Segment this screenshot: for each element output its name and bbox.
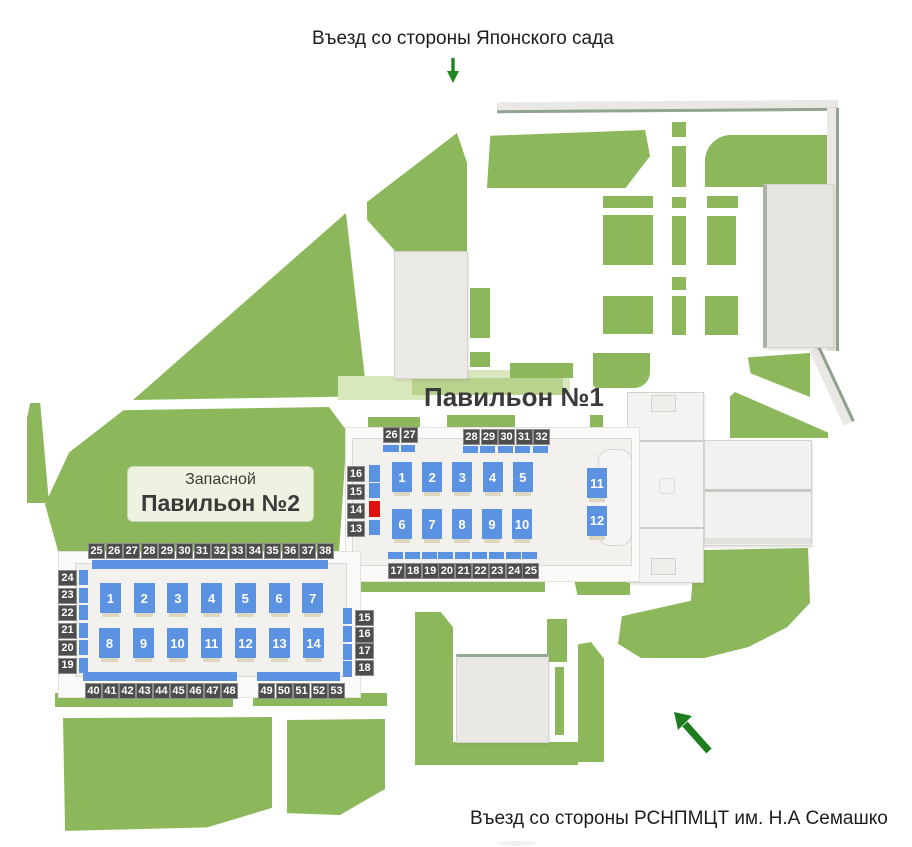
building: [704, 440, 812, 546]
booth-marker-1[interactable]: 1: [392, 462, 412, 492]
booth-marker-4[interactable]: 4: [201, 583, 222, 613]
parking-spot-badge-31[interactable]: 31: [516, 429, 533, 445]
lawn-area: [470, 352, 490, 367]
parking-spot-badge-41[interactable]: 41: [102, 683, 119, 699]
stall-strip: [79, 623, 88, 638]
lawn-area: [672, 197, 686, 208]
lawn-area: [730, 392, 828, 438]
parking-spot-badge-53[interactable]: 53: [328, 683, 345, 699]
stall-strip: [83, 672, 237, 681]
stall-strip: [401, 445, 415, 452]
lawn-area: [415, 742, 578, 765]
lawn-area: [367, 133, 467, 252]
parking-spot-badge-27[interactable]: 27: [123, 543, 140, 559]
parking-spot-badge-16[interactable]: 16: [347, 466, 365, 482]
stall-strip: [489, 552, 504, 559]
parking-spot-badge-40[interactable]: 40: [85, 683, 102, 699]
booth-marker-3[interactable]: 3: [167, 583, 188, 613]
parking-spot-badge-42[interactable]: 42: [119, 683, 136, 699]
booth-marker-12[interactable]: 12: [235, 628, 256, 658]
building: [456, 654, 549, 743]
lawn-area: [672, 216, 686, 265]
parking-spot-badge-29[interactable]: 29: [481, 429, 498, 445]
booth-marker-5[interactable]: 5: [235, 583, 256, 613]
parking-spot-badge-38[interactable]: 38: [317, 543, 334, 559]
stall-strip: [533, 446, 548, 453]
parking-spot-badge-24[interactable]: 24: [506, 563, 523, 579]
lawn-area: [748, 353, 810, 397]
stall-strip: [79, 640, 88, 655]
parking-spot-badge-26[interactable]: 26: [383, 427, 400, 443]
pavilion1-title: Павильон №1: [424, 382, 604, 413]
booth-marker-10[interactable]: 10: [167, 628, 188, 658]
parking-spot-badge-47[interactable]: 47: [204, 683, 221, 699]
parking-spot-badge-43[interactable]: 43: [136, 683, 153, 699]
parking-spot-badge-25[interactable]: 25: [88, 543, 105, 559]
booth-marker-7[interactable]: 7: [422, 509, 442, 539]
parking-spot-badge-52[interactable]: 52: [311, 683, 328, 699]
lawn-area: [555, 667, 564, 735]
booth-marker-14[interactable]: 14: [303, 628, 324, 658]
stall-strip: [343, 626, 352, 642]
parking-spot-badge-34[interactable]: 34: [246, 543, 263, 559]
building-detail: [659, 478, 675, 494]
booth-marker-7[interactable]: 7: [302, 583, 323, 613]
parking-spot-badge-32[interactable]: 32: [211, 543, 228, 559]
pavilion2-title: Павильон №2: [128, 490, 313, 517]
lawn-area: [63, 717, 272, 832]
building: [651, 395, 676, 412]
parking-spot-badge-23[interactable]: 23: [489, 563, 506, 579]
parking-spot-badge-44[interactable]: 44: [153, 683, 170, 699]
lawn-area: [547, 619, 567, 662]
parking-spot-badge-21[interactable]: 21: [58, 623, 77, 639]
parking-spot-badge-30[interactable]: 30: [176, 543, 193, 559]
stall-strip: [472, 552, 487, 559]
stall-strip: [522, 552, 537, 559]
parking-spot-badge-28[interactable]: 28: [463, 429, 480, 445]
parking-spot-badge-48[interactable]: 48: [221, 683, 238, 699]
booth-marker-9[interactable]: 9: [133, 628, 154, 658]
lawn-area: [487, 130, 650, 188]
stall-strip: [79, 605, 88, 620]
parking-spot-badge-32[interactable]: 32: [533, 429, 550, 445]
parking-spot-badge-16[interactable]: 16: [355, 627, 374, 643]
parking-spot-badge-27[interactable]: 27: [401, 427, 418, 443]
parking-spot-badge-17[interactable]: 17: [355, 643, 374, 659]
entrance-bottom-label: Въезд со стороны РСНПМЦТ им. Н.А Семашко: [470, 808, 888, 830]
lawn-area: [510, 363, 573, 378]
stall-strip: [515, 446, 530, 453]
parking-spot-badge-19[interactable]: 19: [422, 563, 439, 579]
entrance-arrow-diagonal-icon: [668, 706, 716, 756]
parking-spot-badge-51[interactable]: 51: [293, 683, 310, 699]
stall-strip: [369, 465, 380, 482]
parking-spot-badge-36[interactable]: 36: [282, 543, 299, 559]
road-wall: [809, 346, 855, 425]
booth-marker-8[interactable]: 8: [99, 628, 120, 658]
booth-marker-8[interactable]: 8: [452, 509, 472, 539]
stall-strip: [343, 608, 352, 624]
parking-spot-badge-18[interactable]: 18: [405, 563, 422, 579]
lawn-area: [672, 122, 686, 137]
entrance-arrow-down-icon: [444, 57, 462, 84]
stall-strip: [422, 552, 437, 559]
pavilion2-subtitle: Запасной: [128, 471, 313, 489]
stall-strip: [79, 658, 88, 673]
lawn-area: [133, 213, 367, 400]
booth-marker-5[interactable]: 5: [513, 462, 533, 492]
parking-spot-badge-20[interactable]: 20: [438, 563, 455, 579]
booth-marker-2[interactable]: 2: [134, 583, 155, 613]
booth-marker-11[interactable]: 11: [587, 468, 607, 498]
parking-spot-badge-26[interactable]: 26: [106, 543, 123, 559]
parking-spot-badge-49[interactable]: 49: [258, 683, 275, 699]
booth-marker-10[interactable]: 10: [512, 509, 532, 539]
parking-spot-badge-46[interactable]: 46: [187, 683, 204, 699]
lawn-area: [603, 196, 653, 208]
parking-spot-badge-19[interactable]: 19: [58, 658, 77, 674]
parking-spot-badge-22[interactable]: 22: [58, 605, 77, 621]
stall-strip: [506, 552, 521, 559]
parking-spot-badge-15[interactable]: 15: [347, 484, 365, 500]
lawn-area: [672, 296, 686, 335]
pavilion2-title-box: Запасной Павильон №2: [127, 466, 314, 522]
parking-spot-badge-22[interactable]: 22: [472, 563, 489, 579]
parking-spot-badge-23[interactable]: 23: [58, 588, 77, 604]
road-wall: [497, 100, 838, 113]
parking-spot-badge-37[interactable]: 37: [299, 543, 316, 559]
lawn-area: [672, 277, 686, 290]
lawn-area: [705, 296, 738, 335]
stall-strip: [79, 570, 88, 585]
building: [651, 558, 676, 575]
parking-spot-badge-13[interactable]: 13: [347, 521, 365, 537]
stall-strip: [369, 520, 380, 535]
booth-marker-11[interactable]: 11: [201, 628, 222, 658]
booth-marker-3[interactable]: 3: [452, 462, 472, 492]
stall-strip: [388, 552, 403, 559]
pavilion1-hall: [352, 438, 632, 566]
parking-spot-badge-45[interactable]: 45: [170, 683, 187, 699]
stall-strip: [463, 446, 478, 453]
lawn-area: [603, 215, 653, 265]
booth-marker-2[interactable]: 2: [422, 462, 442, 492]
booth-marker-6[interactable]: 6: [392, 509, 412, 539]
parking-spot-badge-24[interactable]: 24: [58, 570, 77, 586]
occupied-stall-marker: [369, 501, 380, 517]
lawn-area: [287, 719, 385, 815]
lawn-area: [603, 296, 653, 334]
booth-marker-12[interactable]: 12: [587, 506, 607, 536]
stall-strip: [343, 644, 352, 660]
parking-spot-badge-18[interactable]: 18: [355, 660, 374, 676]
stall-strip: [369, 483, 380, 498]
stall-strip: [343, 661, 352, 677]
lawn-area: [705, 135, 827, 187]
building-divider: [705, 489, 811, 492]
lawn-area: [672, 146, 686, 187]
lawn-area: [578, 642, 604, 762]
parking-spot-badge-31[interactable]: 31: [194, 543, 211, 559]
parking-spot-badge-29[interactable]: 29: [158, 543, 175, 559]
booth-marker-9[interactable]: 9: [482, 509, 502, 539]
parking-spot-badge-15[interactable]: 15: [355, 610, 374, 626]
lawn-area: [470, 288, 490, 338]
parking-spot-badge-28[interactable]: 28: [141, 543, 158, 559]
parking-spot-badge-30[interactable]: 30: [498, 429, 515, 445]
lawn-area: [707, 216, 736, 265]
building: [763, 184, 834, 348]
map-edge-artifact: [497, 841, 537, 846]
booth-marker-13[interactable]: 13: [269, 628, 290, 658]
stall-strip: [257, 672, 340, 681]
entrance-top-label: Въезд со стороны Японского сада: [312, 28, 597, 50]
stall-strip: [92, 560, 328, 569]
parking-spot-badge-33[interactable]: 33: [229, 543, 246, 559]
stall-strip: [480, 446, 495, 453]
building-divider: [705, 538, 811, 544]
parking-spot-badge-50[interactable]: 50: [276, 683, 293, 699]
site-map: Павильон №1 Запасной Павильон №2 Въезд с…: [0, 0, 912, 847]
parking-spot-badge-17[interactable]: 17: [388, 563, 405, 579]
parking-spot-badge-14[interactable]: 14: [347, 503, 365, 519]
stall-strip: [438, 552, 453, 559]
stall-strip: [405, 552, 420, 559]
building: [394, 251, 468, 379]
stall-strip: [383, 445, 399, 452]
booth-marker-1[interactable]: 1: [100, 583, 121, 613]
parking-spot-badge-21[interactable]: 21: [455, 563, 472, 579]
parking-spot-badge-25[interactable]: 25: [522, 563, 539, 579]
stall-strip: [79, 588, 88, 603]
parking-spot-badge-35[interactable]: 35: [264, 543, 281, 559]
lawn-area: [707, 196, 738, 208]
booth-marker-6[interactable]: 6: [269, 583, 290, 613]
stall-strip: [455, 552, 470, 559]
parking-spot-badge-20[interactable]: 20: [58, 640, 77, 656]
booth-marker-4[interactable]: 4: [483, 462, 503, 492]
lawn-area: [27, 403, 49, 503]
stall-strip: [498, 446, 513, 453]
